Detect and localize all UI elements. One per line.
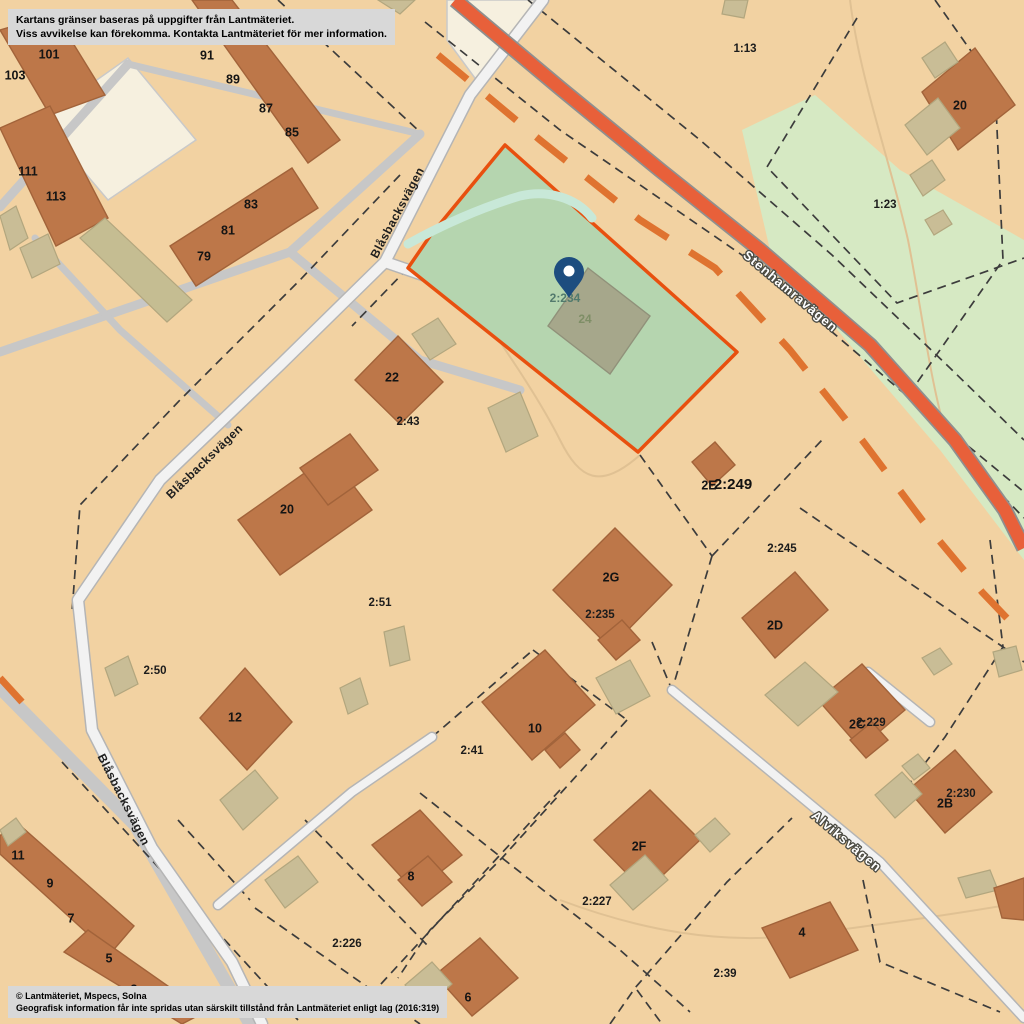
- house-number-2F: 2F: [632, 839, 647, 853]
- house-number-101: 101: [39, 47, 60, 61]
- house-number-83: 83: [244, 197, 258, 211]
- house-number-91: 91: [200, 48, 214, 62]
- map-canvas[interactable]: 103101918987851111138381791:13201:23222:…: [0, 0, 1024, 1024]
- house-number-2D: 2D: [767, 618, 783, 632]
- house-number-103: 103: [5, 68, 26, 82]
- parcel-1-23: 1:23: [873, 199, 896, 211]
- house-number-2G: 2G: [603, 570, 620, 584]
- house-number-11: 11: [11, 848, 24, 862]
- parcel-2-41: 2:41: [460, 745, 484, 757]
- parcel-2-50: 2:50: [143, 665, 166, 677]
- map-disclaimer: Kartans gränser baseras på uppgifter frå…: [8, 9, 395, 45]
- selected-parcel-designation: 2:234: [550, 291, 581, 305]
- parcel-2-235: 2:235: [585, 609, 615, 621]
- house-number-20-ne: 20: [953, 98, 967, 112]
- house-number-7: 7: [68, 911, 75, 925]
- house-number-20-mid: 20: [280, 502, 294, 516]
- parcel-2-245: 2:245: [767, 543, 797, 555]
- copyright-line2: Geografisk information får inte spridas …: [16, 1002, 439, 1014]
- map-copyright: © Lantmäteriet, Mspecs, Solna Geografisk…: [8, 986, 447, 1018]
- house-number-111: 111: [18, 164, 38, 178]
- house-number-10: 10: [528, 721, 542, 735]
- house-number-81: 81: [221, 223, 235, 237]
- house-number-79: 79: [197, 249, 211, 263]
- selected-house-number: 24: [578, 312, 592, 326]
- house-number-5: 5: [106, 951, 113, 965]
- house-number-87: 87: [259, 101, 273, 115]
- house-number-22: 22: [385, 370, 399, 384]
- house-number-9: 9: [47, 876, 54, 890]
- house-number-12: 12: [228, 710, 242, 724]
- house-number-6: 6: [465, 990, 472, 1004]
- parcel-2-39: 2:39: [713, 968, 736, 980]
- house-number-4: 4: [799, 925, 806, 939]
- parcel-2-230: 2:230: [946, 788, 975, 800]
- copyright-line1: © Lantmäteriet, Mspecs, Solna: [16, 990, 439, 1002]
- map-layers: 103101918987851111138381791:13201:23222:…: [0, 0, 1024, 1024]
- parcel-1-13: 1:13: [733, 43, 756, 55]
- house-number-89: 89: [226, 72, 240, 86]
- parcel-2-249: 2:249: [714, 476, 752, 493]
- disclaimer-line2: Viss avvikelse kan förekomma. Kontakta L…: [16, 27, 387, 41]
- house-number-113: 113: [46, 189, 66, 203]
- house-number-85: 85: [285, 125, 299, 139]
- disclaimer-line1: Kartans gränser baseras på uppgifter frå…: [16, 13, 387, 27]
- parcel-2-226: 2:226: [332, 938, 361, 950]
- parcel-2-43: 2:43: [396, 416, 419, 428]
- parcel-2-51: 2:51: [368, 597, 392, 609]
- parcel-2-227: 2:227: [582, 896, 611, 908]
- pin-hole-icon: [564, 266, 575, 277]
- house-number-8: 8: [408, 869, 415, 883]
- parcel-2-229: 2:229: [856, 717, 885, 729]
